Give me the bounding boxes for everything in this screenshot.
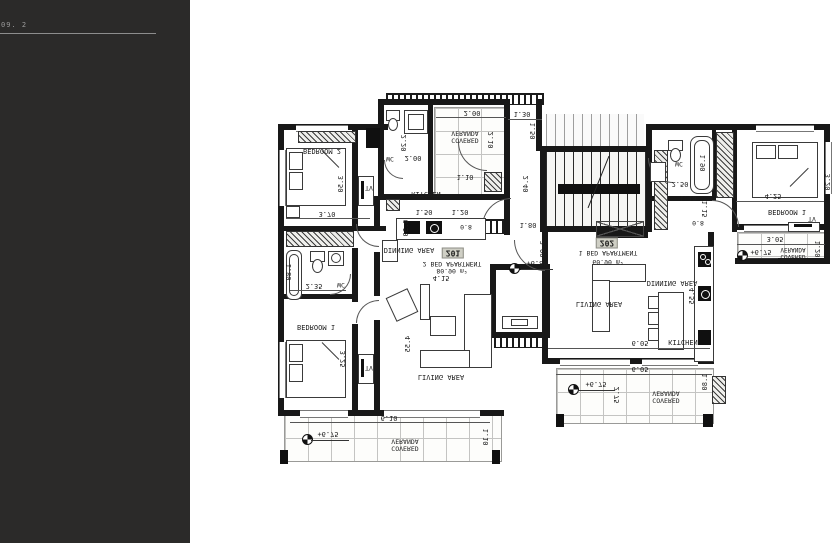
level-underline (746, 258, 778, 259)
window (642, 359, 698, 366)
dimension-line (290, 290, 346, 291)
window (300, 410, 348, 418)
dimension: 1.10 (680, 194, 697, 202)
room-label-bedroom2: BEDROOM 2 (303, 147, 341, 155)
dimension: 3.25 (339, 351, 347, 368)
tv-label: TV (365, 364, 373, 372)
wall (428, 105, 433, 197)
room-label-veranda: COVERED VERANDA (646, 389, 686, 404)
tv-label: TV (808, 215, 816, 223)
level-marker-icon (568, 384, 579, 395)
dimension: 2.40 (522, 176, 530, 193)
room-label-bedroom1: BEDROOM 1 (768, 208, 806, 216)
dimension-line (436, 117, 506, 118)
dimension: 0.8 (692, 219, 704, 227)
pillow (289, 172, 303, 190)
dimension-line (556, 374, 712, 375)
dimension: 2.00 (464, 109, 481, 117)
door-arc (356, 224, 379, 247)
room-label-living: LIVING AREA (576, 300, 622, 308)
elevator-shaft (490, 332, 550, 338)
dimension: 1.80 (701, 374, 709, 391)
pillow (756, 145, 776, 159)
level-value: +6.75 (317, 430, 338, 438)
apartment-area: 60.90 m² (592, 258, 623, 266)
level-marker-icon (737, 250, 748, 261)
wall (374, 320, 380, 412)
dimension: 1.90 (699, 155, 707, 172)
dimension: 1.50 (416, 208, 433, 216)
wall (352, 248, 358, 302)
level-underline (521, 269, 553, 270)
dimension-line (286, 218, 370, 219)
level-value: +6.75 (585, 380, 606, 388)
dimension: 1.10 (482, 429, 490, 446)
dimension-line (290, 422, 490, 423)
tv-unit-screen (361, 181, 364, 199)
room-label-kitchen: KITCHEN (411, 190, 441, 198)
dimension: 1.80 (285, 264, 293, 281)
level-value: +6.75 (750, 248, 771, 256)
room-label-veranda: COVERED VERANDA (445, 129, 485, 144)
apartment-number: 201 (442, 248, 464, 259)
pillar (366, 128, 380, 148)
dimension: 3.20 (824, 174, 832, 191)
vanity-cabinet (650, 162, 666, 182)
dimension: 3.50 (337, 176, 345, 193)
level-marker-icon (509, 263, 520, 274)
pillow (778, 145, 798, 159)
room-label-wc: WC (337, 281, 345, 289)
dimension: 4.25 (765, 192, 782, 200)
dimension: 3.70 (319, 210, 336, 218)
pillar (280, 450, 288, 464)
wall (378, 99, 384, 199)
dimension: 3.05 (767, 235, 784, 243)
tv-unit-screen (361, 359, 364, 377)
veranda-grid-bottom-right (556, 368, 714, 424)
armchair (386, 288, 419, 322)
dimension-line (736, 201, 824, 202)
pillar (556, 414, 564, 427)
level-underline (579, 390, 615, 391)
window (756, 125, 814, 132)
elevator-shaft (544, 264, 550, 338)
apartment-number: 202 (596, 238, 618, 249)
pillow (289, 344, 303, 362)
wardrobe-hatch (286, 231, 354, 247)
window (279, 150, 286, 206)
sink-basin (331, 253, 341, 263)
dimension: 0.50 (402, 220, 410, 237)
wall (378, 99, 510, 105)
toilet-bowl (312, 259, 323, 273)
dimension: 4.55 (688, 288, 696, 305)
sofa (420, 350, 470, 368)
burner-icon (705, 259, 711, 265)
dimension: 6.10 (381, 414, 398, 422)
toilet-bowl (388, 118, 398, 131)
staircase-upper-flight (546, 114, 644, 146)
wall (374, 252, 380, 296)
dimension: 6.05 (632, 365, 649, 373)
dimension: 2.00 (539, 241, 547, 258)
nightstand (286, 206, 300, 218)
coffee-table (430, 316, 456, 336)
room-label-wc: WC (386, 155, 394, 163)
dimension: 0.8 (460, 223, 472, 231)
dimension: 2.50 (672, 180, 689, 188)
side-table (420, 284, 430, 320)
dimension: 2.35 (306, 282, 323, 290)
dimension: 1.20 (814, 241, 822, 258)
pillar (703, 414, 713, 427)
tv-label: TV (365, 184, 373, 192)
dimension: 2.10 (487, 132, 495, 149)
veranda-ladder (712, 376, 726, 404)
shower-inner (408, 114, 424, 130)
window (560, 359, 630, 366)
pillow (289, 364, 303, 382)
dimension: 1.20 (452, 208, 469, 216)
dimension: 1.30 (514, 110, 531, 118)
chair (648, 312, 659, 325)
room-label-wc: WC (675, 160, 683, 168)
shaft-cross-box (596, 221, 644, 237)
level-value: +6.80 (526, 259, 547, 267)
dimension: 1.50 (529, 123, 537, 140)
chair (648, 328, 659, 341)
chair (648, 296, 659, 309)
dimension-line (548, 348, 710, 349)
pillow (289, 152, 303, 170)
floor-plan: +6.80 +6.75 +6.75 +6.75 201 2 BED APARTM… (0, 0, 835, 543)
pillar (492, 450, 500, 464)
wardrobe-hatch (298, 131, 356, 143)
room-label-bedroom1: BEDROOM 1 (297, 323, 335, 331)
apartment-type: 1 BED APARTMENT (579, 249, 638, 257)
dimension: 4.55 (404, 336, 412, 353)
dimension: 1.15 (701, 201, 709, 218)
sink-basin-icon (430, 224, 439, 233)
level-underline (311, 440, 349, 441)
room-label-living: LIVING AREA (418, 373, 464, 381)
door-arc (356, 300, 379, 323)
tv-unit-screen (794, 224, 812, 227)
dimension-line (508, 119, 542, 120)
dimension: 1.80 (520, 221, 537, 229)
dimension: 2.00 (405, 154, 422, 162)
oven-icon (698, 330, 711, 345)
room-label-dinning: DINNING AREA (647, 279, 698, 287)
dimension: 1.10 (457, 173, 474, 181)
stair-landing-band (558, 184, 640, 194)
duct-hatch (484, 172, 502, 192)
wardrobe-hatch (716, 132, 734, 198)
window (279, 342, 286, 398)
room-label-kitchen: KITCHEN (668, 338, 698, 346)
elevator-car-handle (511, 319, 528, 326)
dimension: 4.15 (433, 274, 450, 282)
dimension: 2.20 (400, 135, 408, 152)
window (384, 410, 480, 418)
dimension: 6.05 (632, 339, 649, 347)
duct-hatch (386, 199, 400, 211)
door-arc (482, 198, 511, 227)
room-label-veranda: COVERED VERANDA (385, 437, 425, 452)
room-label-veranda: COVERED VERANDA (776, 245, 810, 259)
sink-basin-icon (701, 290, 710, 299)
room-label-dinning: DINNING AREA (384, 246, 435, 254)
dimension: 2.75 (613, 387, 621, 404)
